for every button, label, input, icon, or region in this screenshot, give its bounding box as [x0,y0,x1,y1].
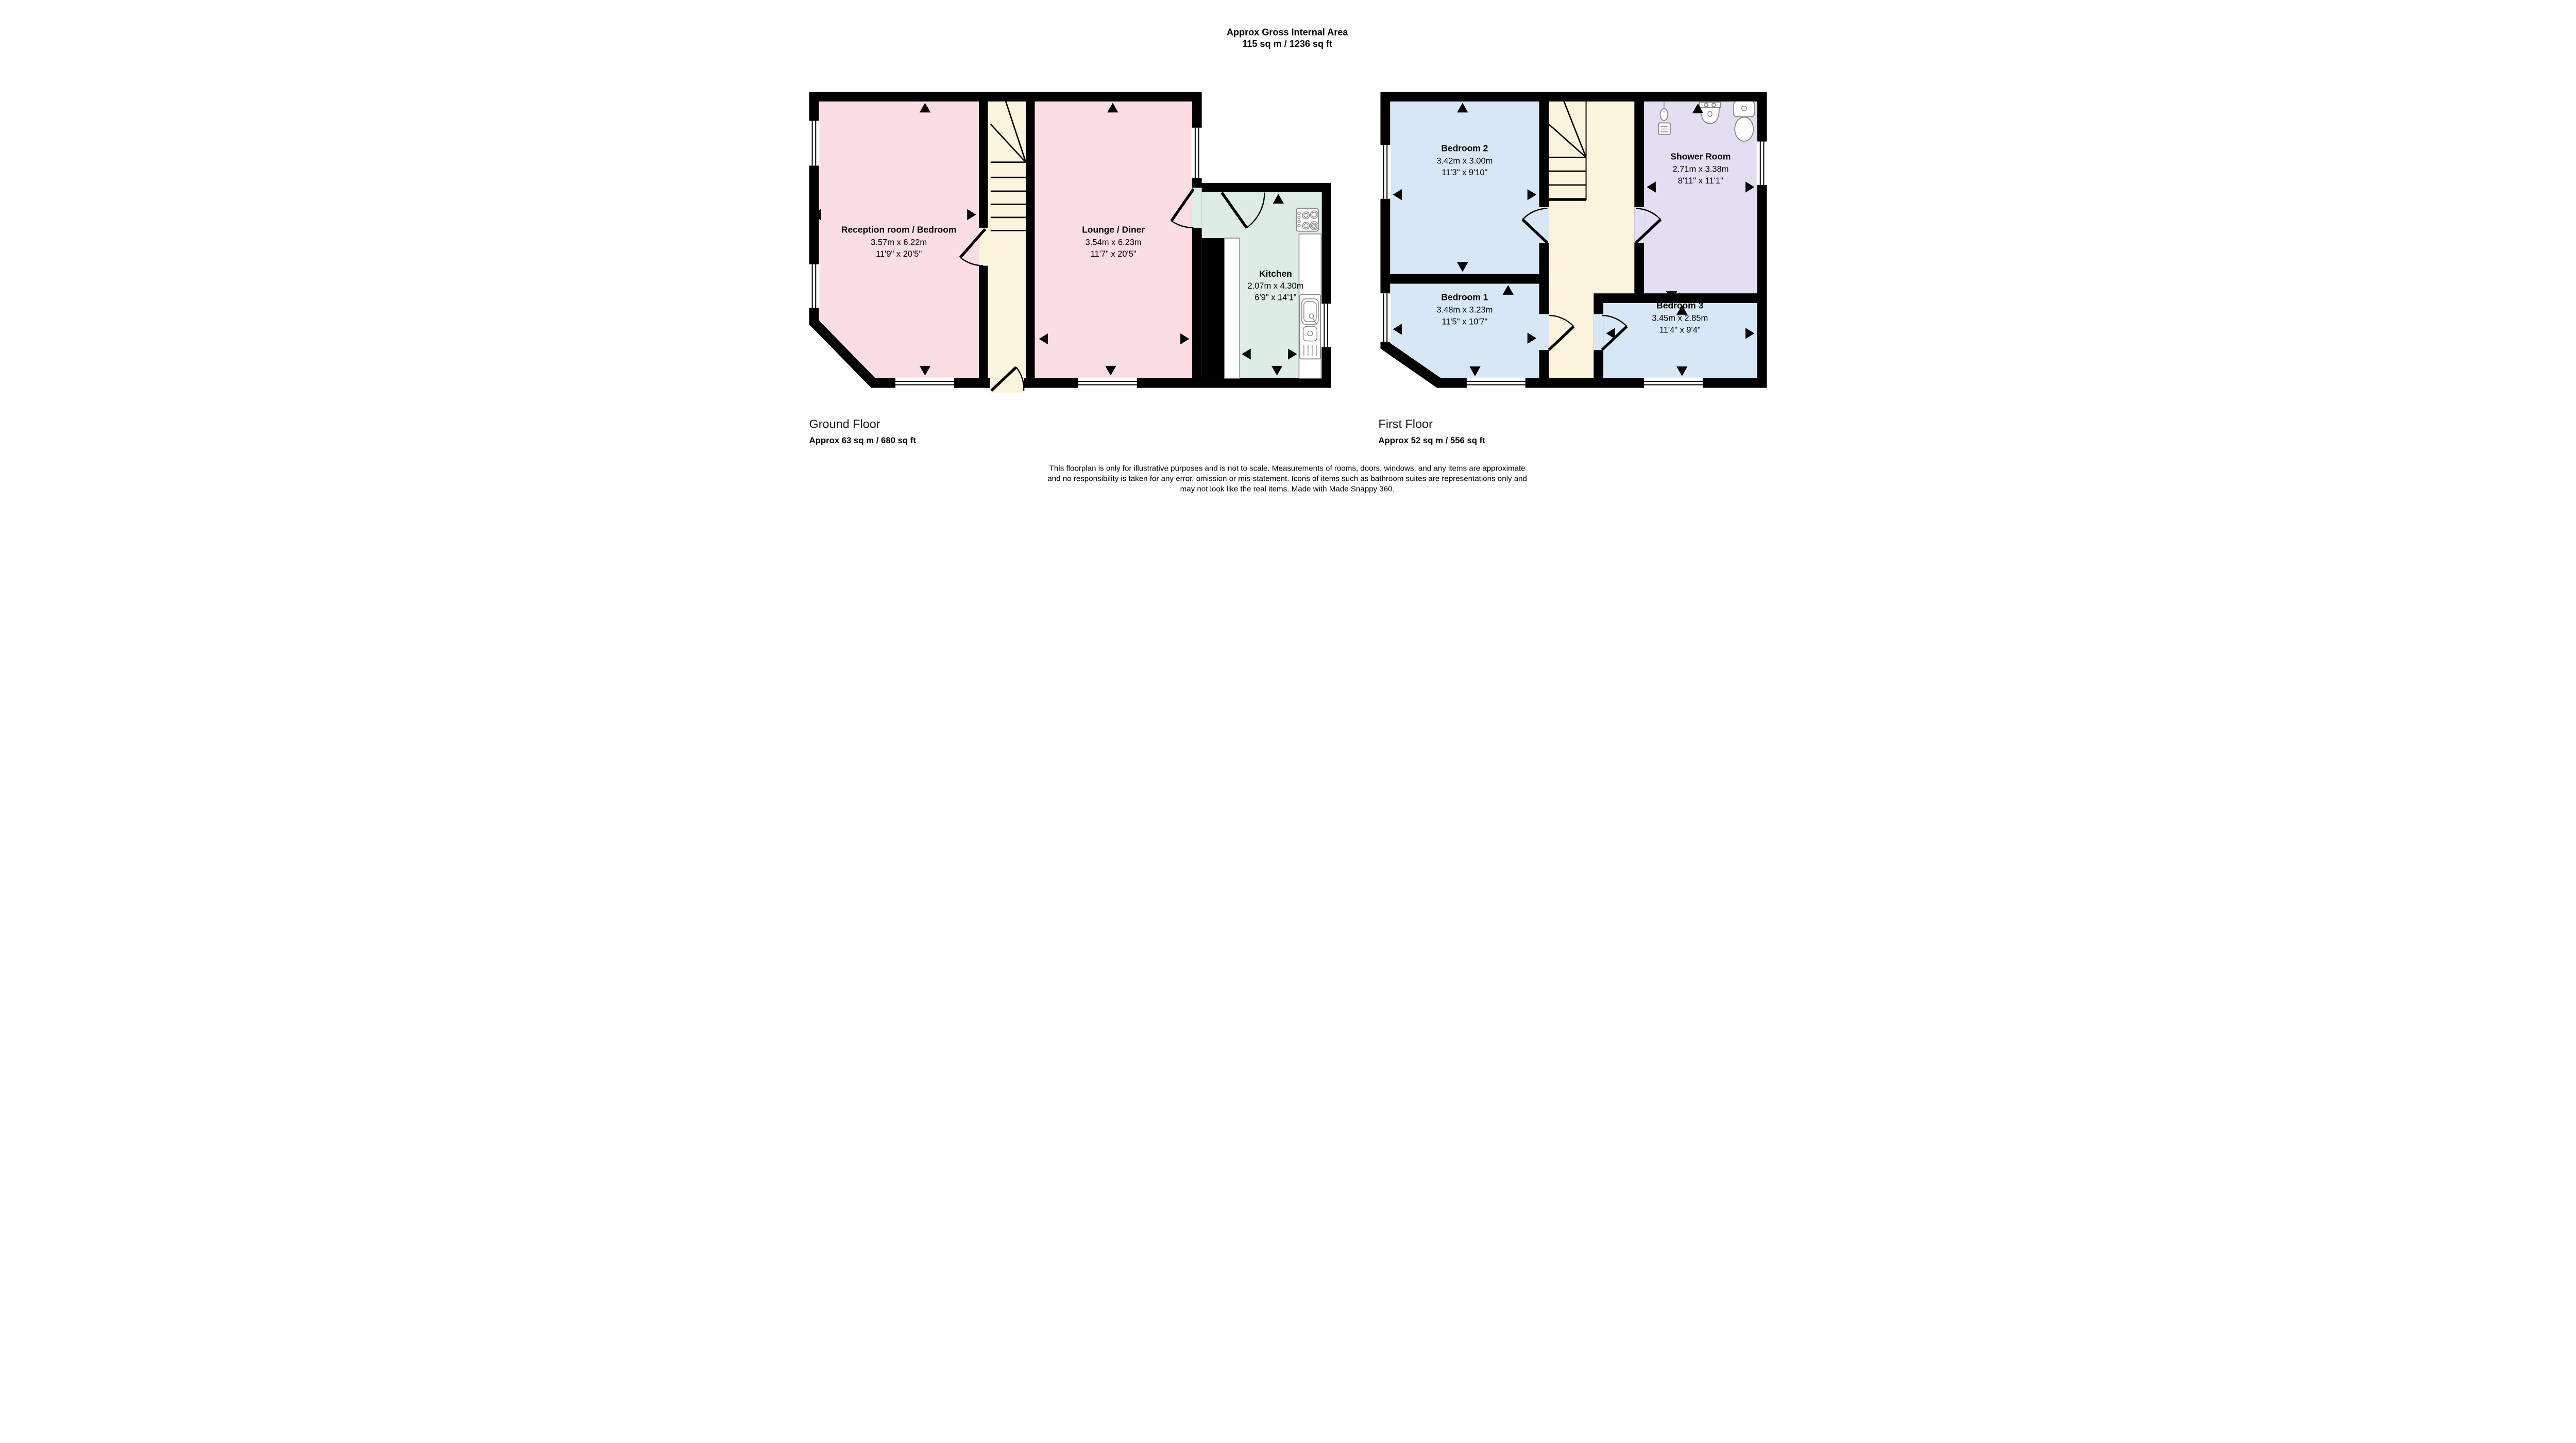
floorplan-page: Approx Gross Internal Area 115 sq m / 12… [747,0,1829,511]
page-title-line1: Approx Gross Internal Area [1227,27,1348,37]
bedroom2-name: Bedroom 2 [1441,143,1488,153]
window-icon [1320,304,1331,347]
window-icon [895,378,954,389]
bedroom1-imperial: 11'5" x 10'7" [1442,317,1487,326]
bedroom2-metric: 3.42m x 3.00m [1436,156,1493,165]
window-icon [1380,145,1391,198]
window-icon [808,264,819,308]
bedroom2-imperial: 11'3" x 9'10" [1442,168,1487,177]
hob-icon [1296,208,1318,231]
first-floor-label: First Floor [1378,417,1433,430]
ground-floor-label: Ground Floor [809,417,880,430]
bedroom3-imperial: 11'4" x 9'4" [1659,326,1701,335]
window-icon [808,121,819,165]
disclaimer-line2: and no responsibility is taken for any e… [1047,474,1527,483]
window-icon [1644,378,1703,389]
lounge-name: Lounge / Diner [1082,224,1145,234]
first-floor-plan: Bedroom 2 3.42m x 3.00m 11'3" x 9'10" Sh… [1380,92,1768,389]
kitchen-metric: 2.07m x 4.30m [1247,281,1303,291]
window-icon [1078,378,1137,389]
lounge-metric: 3.54m x 6.23m [1086,238,1142,247]
first-floor-area: Approx 52 sq m / 556 sq ft [1378,435,1485,445]
window-icon [1467,378,1526,389]
ground-floor-plan: Reception room / Bedroom 3.57m x 6.22m 1… [808,92,1331,393]
kitchen-name: Kitchen [1259,269,1292,279]
room-bedroom2 [1390,102,1539,274]
disclaimer-line1: This floorplan is only for illustrative … [1049,464,1526,473]
sink-icon [1300,295,1320,359]
kitchen-wall-stub [1202,238,1225,378]
bedroom3-name: Bedroom 3 [1656,300,1703,311]
shower-name: Shower Room [1670,151,1731,161]
disclaimer-line3: may not look like the real items. Made w… [1180,485,1395,494]
window-icon [1380,293,1391,342]
kitchen-imperial: 6'9" x 14'1" [1255,293,1296,303]
bedroom3-metric: 3.45m x 2.85m [1652,314,1708,323]
reception-metric: 3.57m x 6.22m [871,238,927,247]
ground-floor-area: Approx 63 sq m / 680 sq ft [809,435,917,445]
reception-imperial: 11'9" x 20'5" [876,249,922,259]
bedroom1-name: Bedroom 1 [1441,292,1488,303]
bedroom1-metric: 3.48m x 3.23m [1436,306,1493,315]
window-icon [1756,142,1767,185]
kitchen-counter-left [1225,238,1240,378]
reception-name: Reception room / Bedroom [841,224,956,234]
toilet-icon [1734,102,1754,141]
lounge-imperial: 11'7" x 20'5" [1091,249,1137,259]
window-icon [1192,128,1202,178]
shower-imperial: 8'11" x 11'1" [1678,176,1723,186]
shower-metric: 2.71m x 3.38m [1672,164,1728,174]
floorplan-canvas: Approx Gross Internal Area 115 sq m / 12… [747,0,1829,511]
page-title-line2: 115 sq m / 1236 sq ft [1242,39,1332,49]
